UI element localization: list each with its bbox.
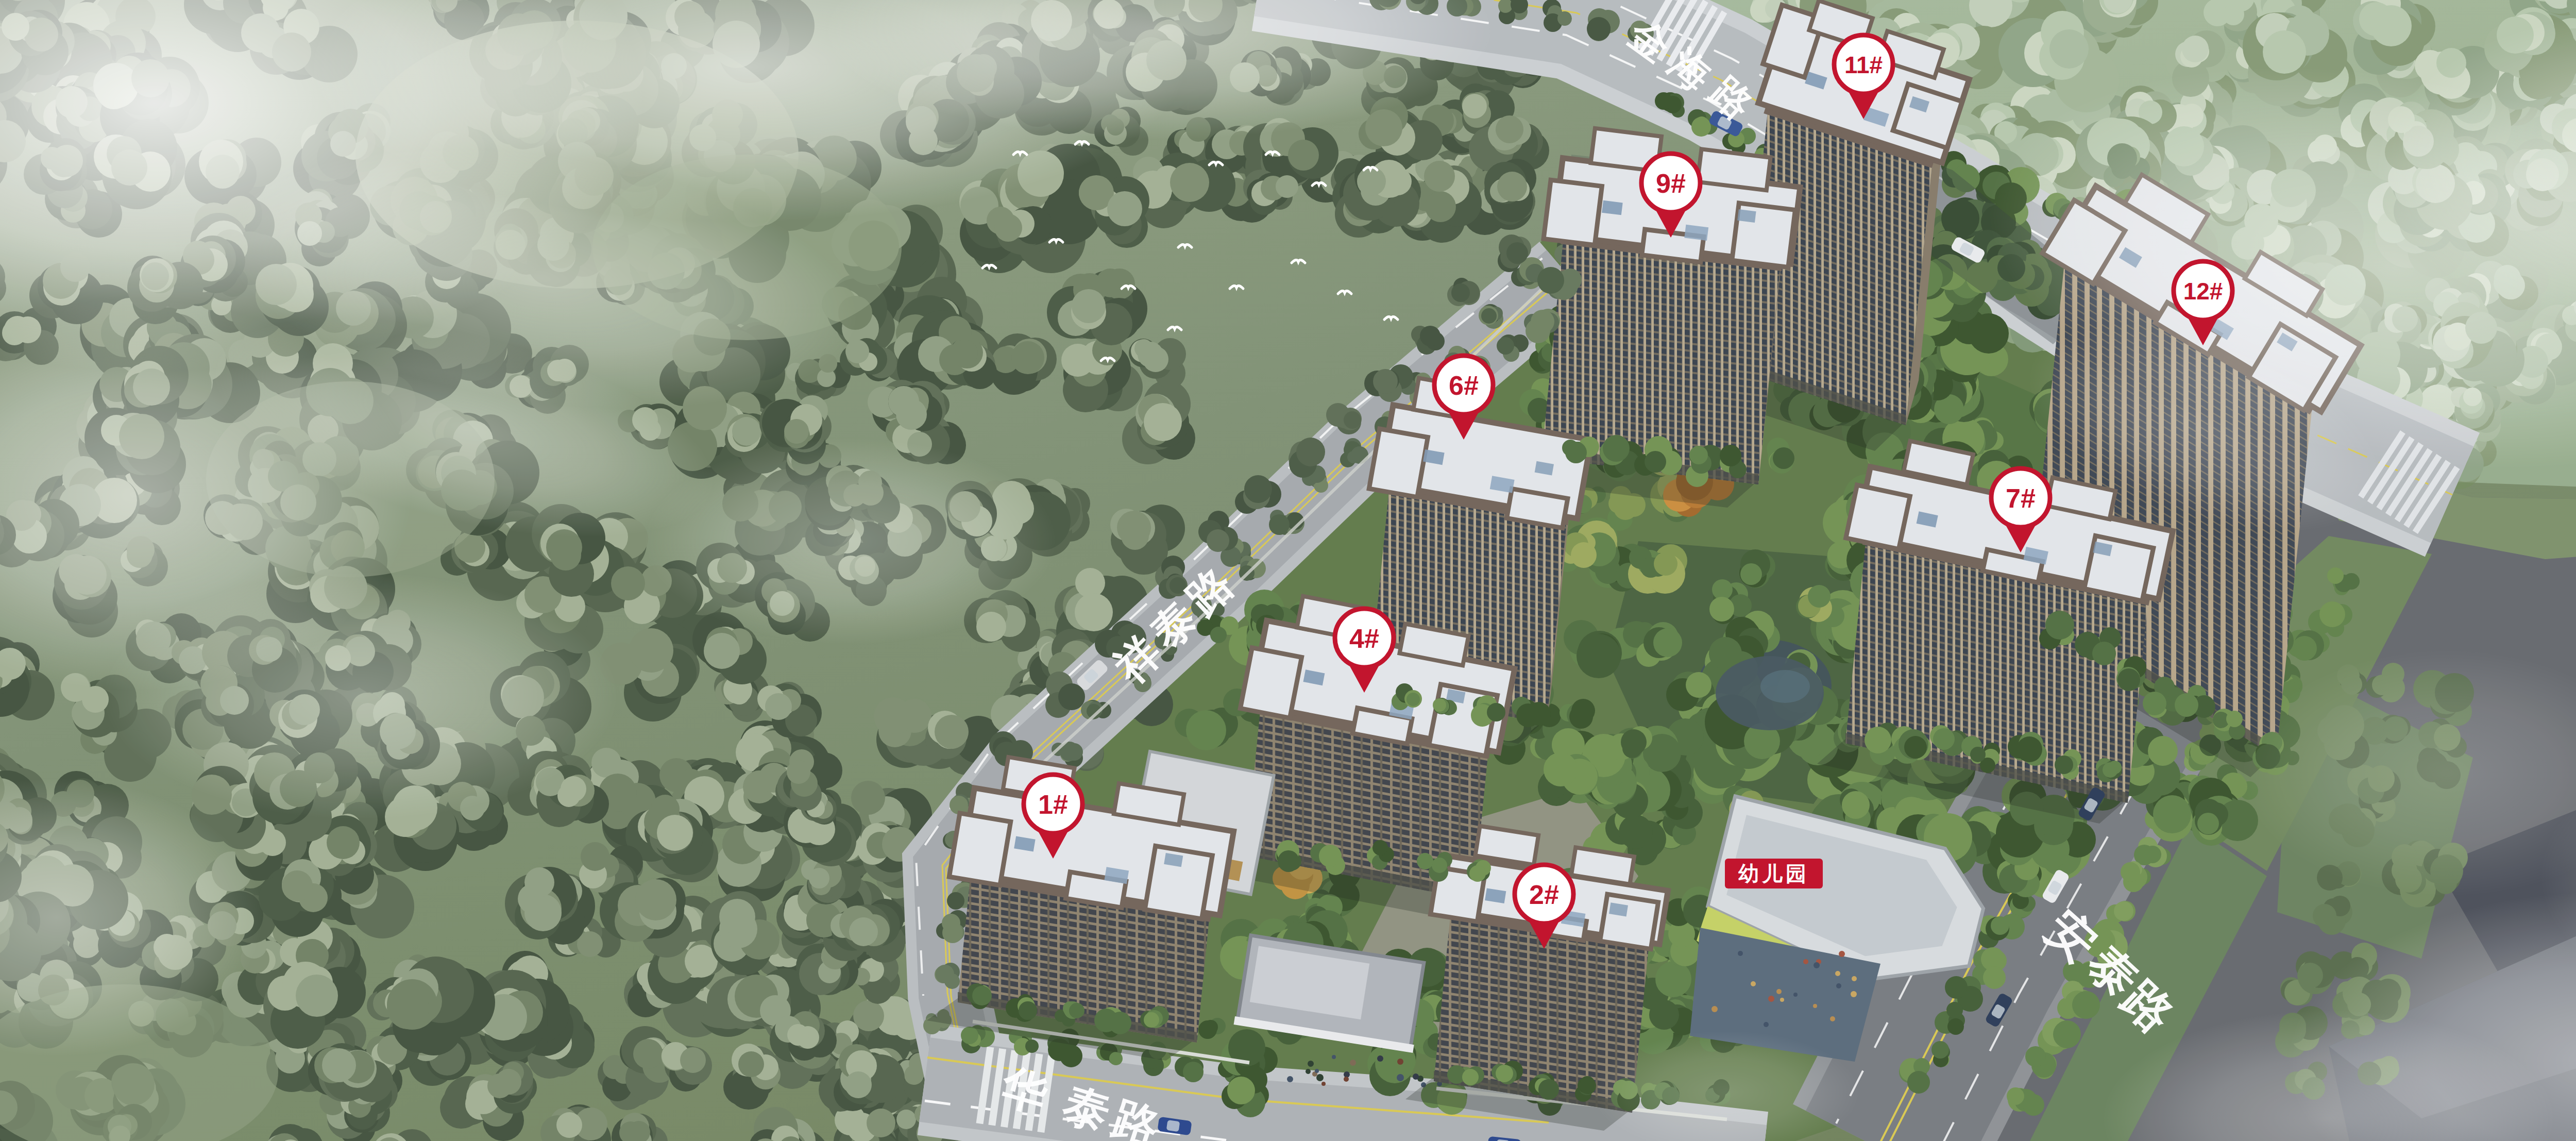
svg-text:12#: 12#: [2183, 278, 2223, 305]
svg-text:7#: 7#: [2006, 483, 2036, 513]
svg-text:2#: 2#: [1529, 880, 1559, 910]
svg-text:11#: 11#: [1844, 52, 1883, 78]
svg-text:幼儿园: 幼儿园: [1738, 862, 1809, 885]
svg-text:9#: 9#: [1656, 169, 1686, 198]
svg-text:4#: 4#: [1349, 624, 1379, 653]
svg-text:1#: 1#: [1038, 790, 1068, 819]
svg-text:6#: 6#: [1449, 371, 1479, 400]
